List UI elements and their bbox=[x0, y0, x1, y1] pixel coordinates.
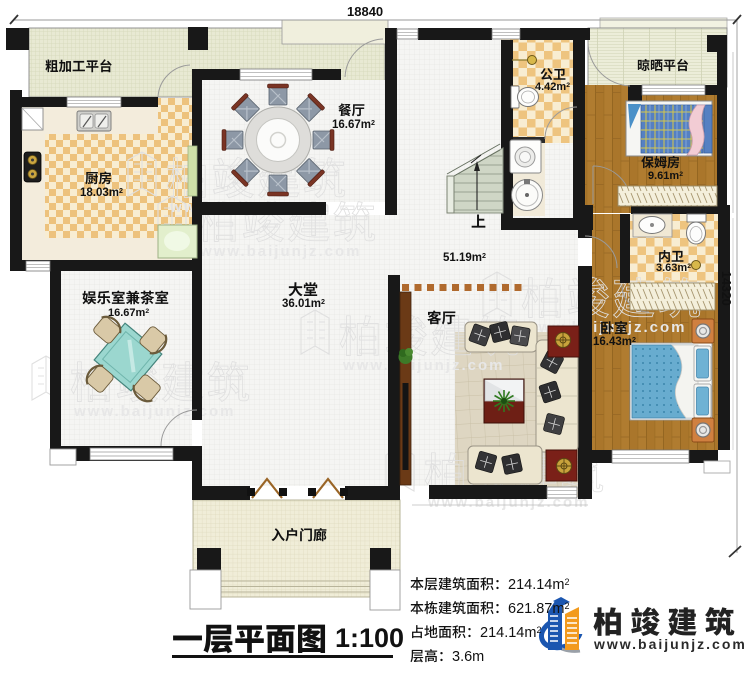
svg-text:621.87m2: 621.87m2 bbox=[508, 601, 569, 617]
svg-text:36.01m2: 36.01m2 bbox=[282, 298, 325, 310]
svg-text:16.43m2: 16.43m2 bbox=[593, 336, 636, 348]
svg-text:18840: 18840 bbox=[347, 4, 383, 19]
svg-text:9.61m2: 9.61m2 bbox=[648, 170, 683, 182]
svg-text:51.19m2: 51.19m2 bbox=[443, 252, 486, 264]
svg-text:3.6m: 3.6m bbox=[452, 649, 484, 665]
svg-text:4.42m2: 4.42m2 bbox=[535, 81, 570, 93]
svg-text:3.63m2: 3.63m2 bbox=[656, 262, 691, 274]
svg-text:214.14m2: 214.14m2 bbox=[508, 577, 569, 593]
svg-text:16.67m2: 16.67m2 bbox=[332, 119, 375, 131]
svg-text:18.03m2: 18.03m2 bbox=[80, 187, 123, 199]
svg-text:14320: 14320 bbox=[719, 271, 733, 306]
svg-text:1:100: 1:100 bbox=[335, 623, 404, 653]
svg-text:214.14m2: 214.14m2 bbox=[480, 625, 541, 641]
svg-text:www.baijunjz.com: www.baijunjz.com bbox=[593, 636, 747, 652]
svg-text:16.67m2: 16.67m2 bbox=[108, 307, 149, 319]
